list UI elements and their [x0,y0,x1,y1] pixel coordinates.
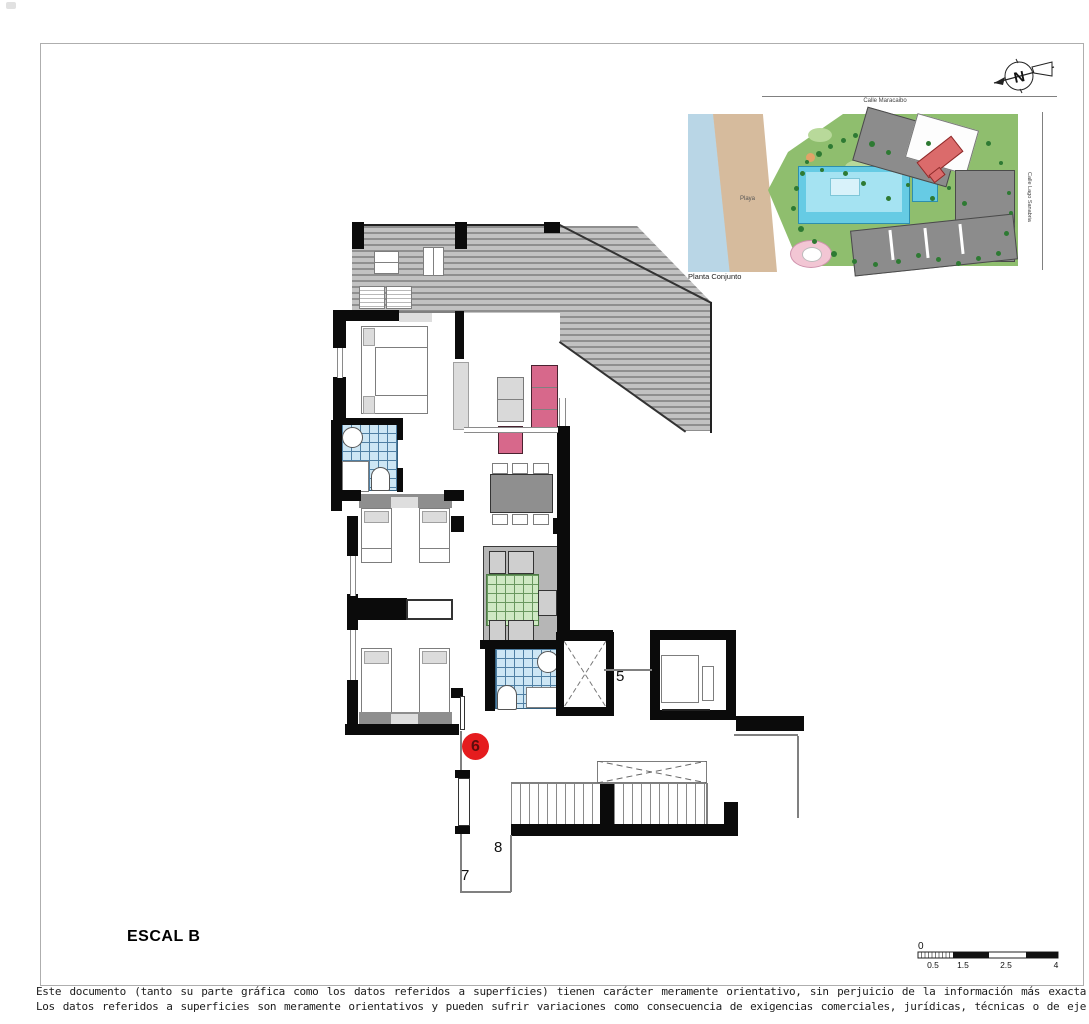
window [350,630,356,680]
tree-icon [1009,211,1013,215]
pillow [422,651,447,664]
wall-segment [357,598,407,620]
wall-segment [397,468,403,492]
svg-text:4: 4 [1054,960,1059,970]
tree-icon [930,196,935,201]
pond-inner [802,247,822,262]
sofa-cushion-line [532,409,557,410]
tree-icon [828,144,833,149]
wall-segment [455,770,470,778]
dining-chair [533,463,549,474]
road-label-right: Calle Lago Sanabria [1026,172,1032,222]
terrace-door [464,427,558,433]
shower-tray [526,687,557,708]
tree-icon [976,256,981,261]
appliance [489,551,506,574]
stair-edge-line [706,783,708,824]
sink [342,427,363,448]
wall-segment [347,680,358,726]
beach-label: Playa [740,196,755,202]
dining-chair [512,514,528,525]
tree-icon [996,251,1001,256]
svg-text:1.5: 1.5 [957,960,969,970]
road-label-top: Calle Maracaibo [845,98,925,104]
tree-icon [791,206,796,211]
site-plan-caption: Planta Conjunto [688,272,741,281]
road-line [1042,112,1043,270]
entry-door-leaf [460,696,465,730]
tree-icon [1004,231,1009,236]
disclaimer-line-1: Este documento (tanto su parte gráfica c… [36,985,1086,1000]
tree-icon [798,226,804,232]
tree-icon [800,171,805,176]
bed-line [361,548,392,549]
tree-icon [886,150,891,155]
tree-icon [956,261,961,266]
pillow [364,651,389,664]
kitchen-floor [486,574,539,626]
stair-treads [614,784,707,824]
closet-strip [399,312,432,322]
floor-plan [0,0,1089,1024]
wall-segment [341,418,403,425]
scale-bar: 0 0.5 1.5 2.5 4 [912,936,1068,972]
corridor-line [604,669,652,671]
window [559,398,566,426]
dining-table [490,474,553,513]
tree-icon [853,133,858,138]
nightstand [391,497,418,508]
landing-line [460,731,462,771]
machine-equipment [702,666,714,701]
wall-segment [736,716,804,731]
terrace-lounger [359,286,385,309]
wall-segment [331,420,342,492]
terrace-lounger-line [433,247,434,276]
appliance [538,590,557,616]
tree-icon [947,186,951,190]
tree-icon [820,168,824,172]
bed-line [419,548,450,549]
disclaimer-text: Este documento (tanto su parte gráfica c… [36,985,1086,1014]
tree-icon [906,183,910,187]
wall-segment [455,826,470,834]
disclaimer-line-2: Los datos referidos a superficies son me… [36,1000,1086,1015]
wall-segment [333,490,361,501]
sofa-cushion-line [532,387,557,388]
lawn-patch [808,128,832,142]
loveseat-line [498,399,523,400]
tree-icon [999,161,1003,165]
window [337,348,343,378]
terrace-table-line [374,262,399,263]
bed-mattress [375,347,428,396]
toilet [497,685,517,710]
wall-segment [724,802,738,836]
svg-text:2.5: 2.5 [1000,960,1012,970]
wall-line [399,311,455,313]
tree-icon [962,201,967,206]
svg-text:0: 0 [918,941,924,952]
drawing-sheet: 6 5 8 7 ESCAL B Playa Planta Conjunto Ca… [0,0,1089,1024]
pool-deck [830,178,860,196]
machine-door-line [662,709,710,711]
wall-segment [600,783,614,824]
tree-icon [1007,191,1011,195]
tree-icon [841,138,846,143]
tree-icon [805,160,809,164]
landing-label-8: 8 [494,839,502,856]
landing-line [734,734,798,736]
svg-text:0.5: 0.5 [927,960,939,970]
wall-segment [511,824,726,836]
vanity [342,461,369,492]
tree-icon [926,141,931,146]
landing-label-7: 7 [461,867,469,884]
svg-text:N: N [1012,68,1026,87]
tree-icon [936,257,941,262]
tree-icon [916,253,921,258]
tree-icon [873,262,878,267]
elevator-lobby-label: 5 [616,668,624,685]
dining-chair [533,514,549,525]
closet-box [406,599,453,620]
tree-icon [812,239,817,244]
wall-segment [553,518,562,534]
wall-segment [347,516,358,556]
sofa [531,365,558,433]
elevator-cross-icon [564,641,606,707]
wall-segment [451,516,464,532]
landing-line [510,835,512,892]
tree-icon [869,141,875,147]
tree-icon [816,151,822,157]
terrace-lounger [386,286,412,309]
tree-icon [861,181,866,186]
landing-line [460,891,511,893]
tree-icon [986,141,991,146]
tree-icon [794,186,799,191]
pillow [422,511,447,523]
wall-segment [345,724,459,735]
tree-icon [843,171,848,176]
dining-chair [492,514,508,525]
pillow [363,396,375,414]
wall-segment [455,311,464,359]
wall-segment [444,490,464,501]
stair-treads [511,784,600,824]
tree-icon [852,259,857,264]
wall-segment [485,644,495,711]
wall-segment [352,222,364,249]
wall-segment [544,222,560,233]
window [350,556,356,596]
tree-icon [886,196,891,201]
tree-icon [831,251,837,257]
dining-chair [492,463,508,474]
staircase-title: ESCAL B [127,928,200,946]
wall-segment [397,418,403,440]
machine-equipment [661,655,699,703]
wall-segment [333,377,346,422]
unit-number-badge: 6 [462,733,489,760]
wall-segment [455,222,467,249]
sideboard [453,362,469,430]
dining-chair [512,463,528,474]
toilet [371,467,390,491]
pillow [364,511,389,523]
stair-landing-cross-icon [597,761,707,783]
north-arrow-icon: N [992,54,1056,100]
terrace-edge [710,302,712,433]
landing-door-leaf [458,778,470,826]
wall-segment [333,310,346,348]
landing-line [797,736,799,818]
pillow [363,328,375,346]
nightstand [391,714,418,724]
tree-icon [896,259,901,264]
appliance [508,551,534,574]
